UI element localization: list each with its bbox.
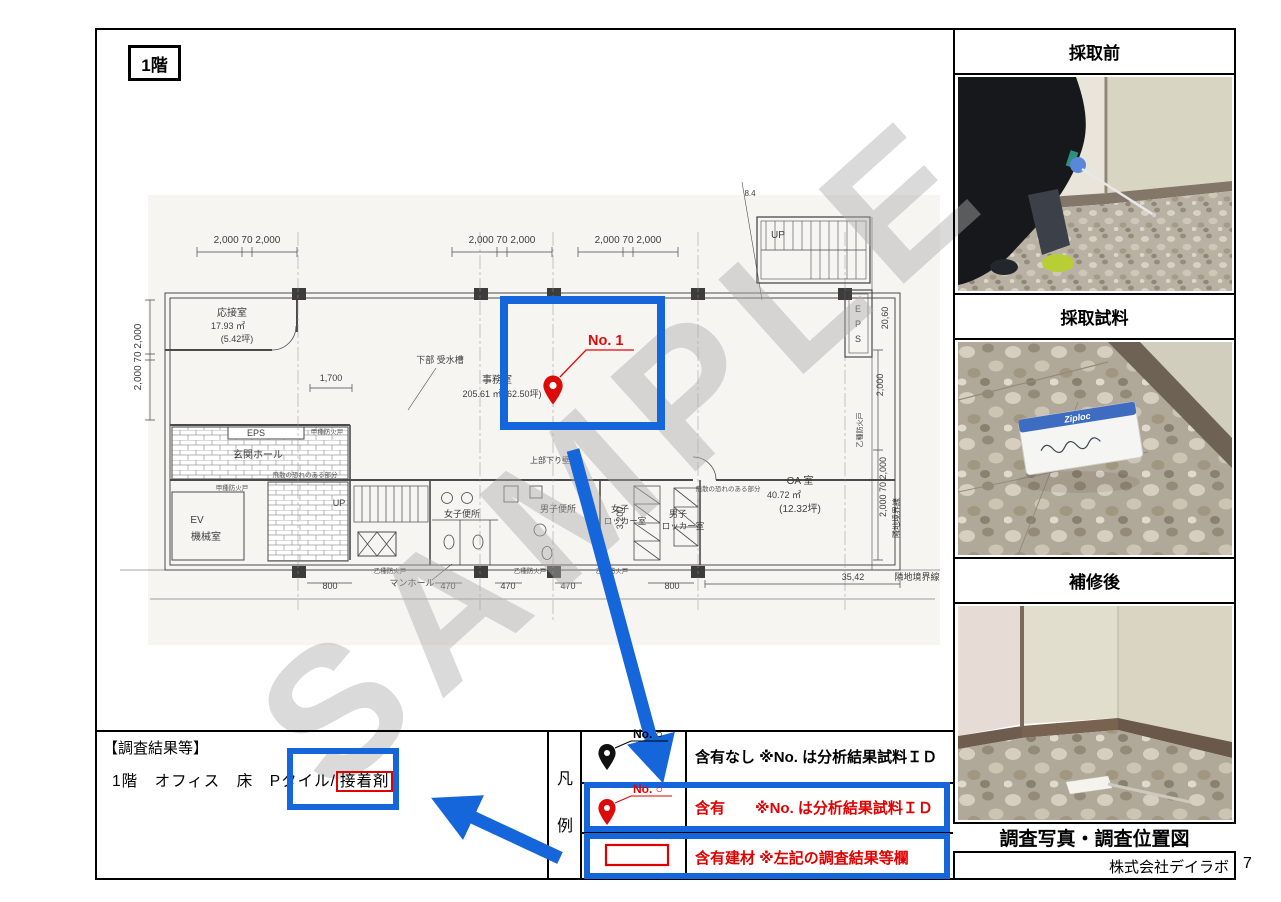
divider-legend-col: [580, 730, 582, 878]
results-line: 1階 オフィス 床 Pタイル/接着剤: [112, 769, 393, 791]
plan-label: 男子: [669, 509, 687, 519]
photo-sample: Ziploc: [958, 342, 1232, 555]
plan-label: 甲種防火戸: [216, 483, 249, 492]
plan-label: UP: [771, 230, 785, 241]
plan-label: 2,000 70 2,000: [133, 323, 144, 390]
plan-label: 乙種防火戸: [855, 413, 864, 448]
photo-header-before: 採取前: [953, 28, 1236, 75]
plan-label: 応接室: [217, 306, 247, 319]
photo-before-sampling: [958, 77, 1232, 291]
floor-label-text: 1階: [141, 51, 167, 76]
plan-label: 2,000 70 2,000: [595, 235, 662, 246]
plan-label: 800: [664, 581, 679, 591]
plan-label: P: [855, 319, 861, 329]
legend-row-3-text: 含有建材 ※左記の調査結果等欄: [695, 843, 950, 871]
plan-label: 3,200: [615, 507, 625, 530]
legend-title-char-2: 例: [552, 812, 578, 836]
plan-label: 1,700: [320, 373, 343, 383]
plan-label: 隣地境界線: [891, 498, 901, 538]
plan-label: 飛散の恐れのある部分: [273, 470, 339, 479]
divider-results-top: [95, 730, 953, 732]
plan-label: マンホール: [389, 578, 434, 588]
plan-label: ロッカー室: [604, 516, 647, 526]
plan-label: S: [855, 334, 861, 344]
plan-label: 205.61 ㎡ (62.50坪): [462, 389, 541, 399]
plan-label: 機械室: [191, 530, 221, 543]
plan-label: 事務室: [482, 373, 512, 386]
photo-after-repair: [958, 606, 1232, 820]
plan-label: OA 室: [787, 474, 814, 487]
plan-label: 2,000 70 2,000: [469, 235, 536, 246]
footer-title: 調査写真・調査位置図: [953, 822, 1236, 853]
results-highlight: 接着剤: [336, 771, 394, 792]
plan-label: 2,000: [875, 374, 885, 397]
plan-label: EPS: [247, 428, 265, 438]
plan-label: (5.42坪): [221, 334, 254, 344]
legend-title-char-1: 凡: [552, 765, 578, 789]
plan-label: 下部 受水槽: [416, 354, 464, 365]
results-heading: 【調査結果等】: [103, 737, 208, 758]
plan-label: 470: [560, 581, 575, 591]
plan-label: 800: [322, 581, 337, 591]
legend-row-divider-2: [580, 832, 953, 834]
plan-label: ロッカー室: [662, 521, 705, 531]
page-number: 7: [1243, 855, 1252, 873]
report-page: 2,000 70 2,0002,000 70 2,0002,000 70 2,0…: [0, 0, 1281, 902]
floor-label: 1階: [128, 45, 181, 81]
legend-row-2-text: 含有 ※No. は分析結果試料ＩＤ: [695, 793, 950, 821]
plan-label: 20,60: [880, 307, 890, 330]
plan-label: 玄関ホール: [233, 448, 283, 461]
plan-label: E: [855, 304, 861, 314]
plan-label: 男子便所: [540, 503, 576, 514]
footer-company: 株式会社デイラボ: [953, 853, 1229, 880]
plan-label: 2,000 70 2,000: [878, 457, 888, 517]
plan-label: 40.72 ㎡: [767, 490, 801, 500]
divider-right-pane: [953, 28, 955, 878]
plan-label: 乙種防火戸: [514, 566, 547, 575]
plan-label: 2,000 70 2,000: [214, 235, 281, 246]
photo-header-after: 補修後: [953, 557, 1236, 604]
plan-label: 女子便所: [444, 508, 480, 519]
results-line-prefix: 1階 オフィス 床 Pタイル/: [112, 773, 336, 790]
plan-label: 8.4: [744, 189, 756, 198]
divider-legend-left: [547, 730, 549, 878]
plan-label: UP: [333, 498, 346, 508]
plan-label: 甲種防火戸: [311, 427, 344, 436]
plan-label: 35,42: [842, 572, 865, 582]
plan-label: 470: [500, 581, 515, 591]
plan-label: 乙種防火戸: [596, 566, 629, 575]
plan-label: 上部下り壁: [530, 455, 570, 465]
plan-label: (12.32坪): [779, 502, 821, 515]
plan-label: 飛散の恐れのある部分: [696, 484, 762, 493]
plan-label: 乙種防火戸: [374, 566, 407, 575]
plan-label: 17.93 ㎡: [211, 321, 245, 331]
plan-label: 470: [440, 581, 455, 591]
photo-header-sample: 採取試料: [953, 293, 1236, 340]
legend-row-1-text: 含有なし ※No. は分析結果試料ＩＤ: [695, 742, 950, 770]
legend-row-divider-1: [580, 782, 953, 784]
divider-legend-pin-col: [685, 730, 687, 878]
plan-label: EV: [190, 515, 204, 526]
plan-label: 隣地境界線: [894, 571, 939, 582]
